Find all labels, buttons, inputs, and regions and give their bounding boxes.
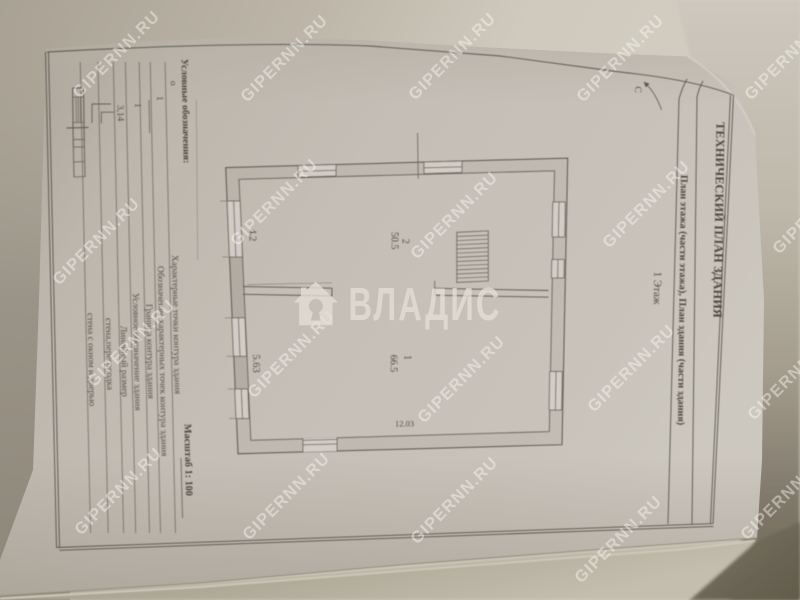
svg-text:1 Этаж: 1 Этаж bbox=[651, 271, 663, 304]
svg-text:стена с окном и дверью: стена с окном и дверью bbox=[85, 313, 97, 407]
svg-text:50.5: 50.5 bbox=[389, 232, 400, 250]
svg-text:5.63: 5.63 bbox=[250, 354, 261, 372]
svg-text:66.5: 66.5 bbox=[388, 355, 399, 373]
svg-text:С: С bbox=[632, 86, 642, 92]
svg-text:12.03: 12.03 bbox=[395, 419, 414, 429]
svg-text:о: о bbox=[168, 81, 178, 86]
svg-text:ВЛАДИС: ВЛАДИС bbox=[349, 278, 502, 330]
svg-text:1: 1 bbox=[154, 96, 164, 101]
svg-text:1: 1 bbox=[132, 103, 142, 108]
svg-text:2: 2 bbox=[400, 239, 411, 244]
svg-text:3,14: 3,14 bbox=[115, 105, 125, 122]
svg-text:Масштаб 1: 100: Масштаб 1: 100 bbox=[182, 424, 195, 496]
svg-text:1: 1 bbox=[402, 355, 413, 360]
svg-text:Условные обозначения:: Условные обозначения: bbox=[179, 59, 192, 164]
